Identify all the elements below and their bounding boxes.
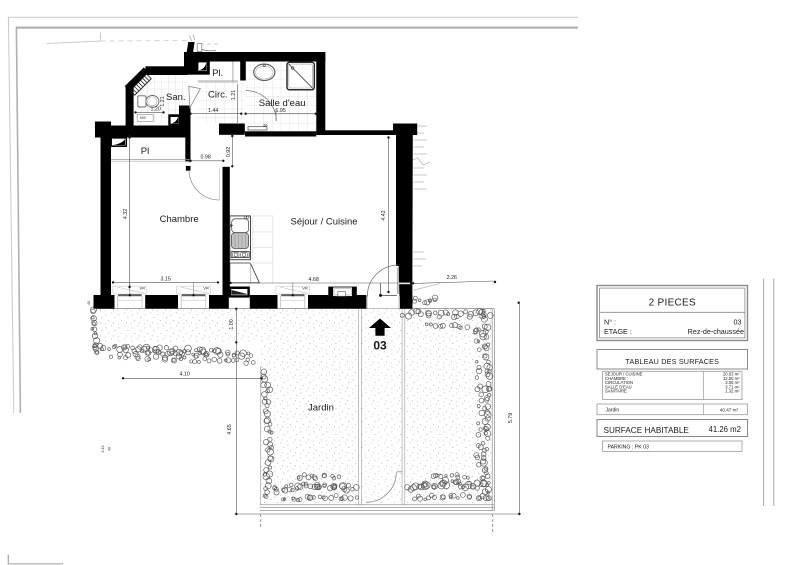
svg-text:4.32: 4.32 [123,209,129,219]
svg-text:600: 600 [140,116,146,120]
svg-text:1.95: 1.95 [276,108,286,114]
svg-text:2 PIECES: 2 PIECES [649,297,696,308]
svg-text:2.43: 2.43 [101,446,105,453]
svg-text:Rez-de-chaussée: Rez-de-chaussée [688,327,744,336]
svg-text:Jardin: Jardin [308,403,334,414]
svg-text:ETAGE :: ETAGE : [604,327,632,336]
svg-text:1.32 m²: 1.32 m² [725,389,740,394]
svg-text:66: 66 [264,123,268,127]
svg-text:1.44: 1.44 [208,108,218,114]
svg-text:0.98: 0.98 [201,155,211,161]
svg-text:San.: San. [166,92,186,103]
svg-text:40: 40 [87,301,91,305]
svg-text:SURFACE HABITABLE: SURFACE HABITABLE [604,426,690,435]
svg-text:03: 03 [734,317,742,326]
svg-text:4.68: 4.68 [309,277,319,283]
svg-text:1.00: 1.00 [229,319,235,329]
svg-text:0.92: 0.92 [226,147,232,157]
svg-text:03: 03 [373,339,387,353]
svg-text:1.21: 1.21 [160,96,166,106]
svg-text:4.65: 4.65 [227,424,233,434]
svg-text:3.15: 3.15 [161,276,171,282]
svg-text:VR: VR [140,286,146,291]
svg-text:SANITAIRE: SANITAIRE [605,389,627,394]
svg-text:Circ.: Circ. [208,90,228,101]
svg-text:40.47 m²: 40.47 m² [720,407,739,412]
svg-text:N° :: N° : [604,317,616,326]
svg-text:4.10: 4.10 [180,372,190,378]
svg-text:PARKING : PK 03: PARKING : PK 03 [608,444,650,450]
svg-text:4.42: 4.42 [381,210,387,220]
svg-text:41.26 m2: 41.26 m2 [708,425,741,434]
svg-text:VR: VR [302,286,308,291]
svg-text:Pl: Pl [141,146,149,157]
svg-text:TABLEAU DES SURFACES: TABLEAU DES SURFACES [625,357,719,366]
svg-text:Salle d'eau: Salle d'eau [259,98,306,109]
svg-text:Jardin: Jardin [606,408,620,414]
svg-text:Chambre: Chambre [160,214,199,225]
svg-text:5.79: 5.79 [508,413,514,423]
svg-text:2.26: 2.26 [447,275,457,281]
svg-text:1.21: 1.21 [231,90,237,100]
svg-text:Pl.: Pl. [212,68,223,79]
svg-text:40: 40 [108,447,112,451]
svg-text:Séjour / Cuisine: Séjour / Cuisine [291,216,358,227]
svg-text:VR: VR [203,286,209,291]
